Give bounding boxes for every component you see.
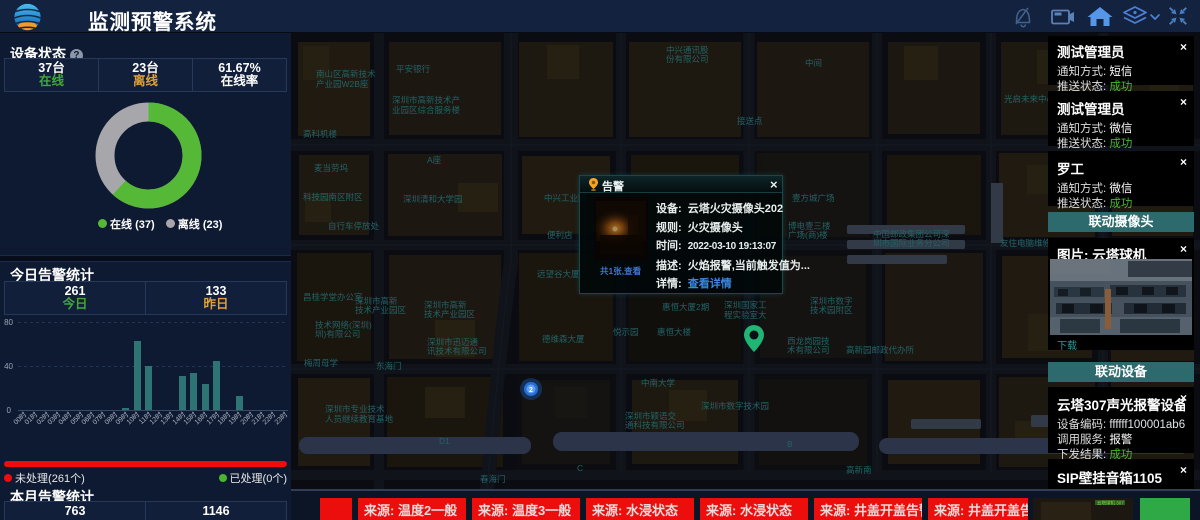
svg-text:0: 0 bbox=[7, 406, 12, 415]
svg-text:2: 2 bbox=[529, 387, 533, 394]
svg-text:云塔球机 307: 云塔球机 307 bbox=[1097, 500, 1124, 507]
svg-text:技术产业园区: 技术产业园区 bbox=[355, 305, 407, 315]
svg-text:深圳清和大学园: 深圳清和大学园 bbox=[403, 194, 463, 204]
svg-text:D1: D1 bbox=[439, 436, 450, 446]
svg-text:产业园W2B座: 产业园W2B座 bbox=[316, 79, 369, 89]
svg-text:科技园南区附区: 科技园南区附区 bbox=[303, 192, 363, 202]
svg-text:梅周母学: 梅周母学 bbox=[304, 358, 339, 368]
svg-text:通科技有限公司: 通科技有限公司 bbox=[625, 420, 685, 430]
svg-text:南山区高新技术: 南山区高新技术 bbox=[316, 69, 376, 79]
svg-text:中间: 中间 bbox=[805, 58, 822, 68]
svg-text:C: C bbox=[577, 463, 583, 473]
svg-text:圳市国际业务分公司: 圳市国际业务分公司 bbox=[873, 238, 950, 248]
svg-text:春海门: 春海门 bbox=[480, 474, 506, 484]
svg-text:麦当劳坞: 麦当劳坞 bbox=[314, 163, 348, 173]
svg-text:深圳市专业技术: 深圳市专业技术 bbox=[325, 404, 385, 414]
svg-text:人员继续教育基地: 人员继续教育基地 bbox=[325, 414, 394, 424]
svg-text:壹方城广场: 壹方城广场 bbox=[792, 193, 835, 203]
svg-text:份有限公司: 份有限公司 bbox=[666, 54, 709, 64]
svg-text:远望谷大厦: 远望谷大厦 bbox=[537, 269, 580, 279]
svg-text:便利店: 便利店 bbox=[547, 230, 573, 240]
svg-text:深圳市高新技术产: 深圳市高新技术产 bbox=[392, 95, 460, 105]
svg-text:东海门: 东海门 bbox=[376, 361, 402, 371]
svg-text:技术园附区: 技术园附区 bbox=[810, 305, 853, 315]
svg-text:德维森大厦: 德维森大厦 bbox=[542, 334, 585, 344]
svg-text:接送点: 接送点 bbox=[737, 116, 763, 126]
svg-text:B: B bbox=[787, 439, 793, 449]
svg-text:讯技术有限公司: 讯技术有限公司 bbox=[427, 346, 487, 356]
svg-text:40: 40 bbox=[4, 362, 13, 371]
svg-text:术有限公司: 术有限公司 bbox=[787, 345, 830, 355]
svg-text:友住电脑维修: 友住电脑维修 bbox=[1000, 238, 1052, 248]
svg-text:A座: A座 bbox=[427, 155, 442, 165]
svg-text:技术产业园区: 技术产业园区 bbox=[424, 309, 476, 319]
svg-text:自行车停放处: 自行车停放处 bbox=[328, 221, 380, 231]
svg-text:昌桂学堂办公室: 昌桂学堂办公室 bbox=[303, 292, 363, 302]
svg-text:悦示园: 悦示园 bbox=[613, 327, 639, 337]
svg-text:广场(商)楼: 广场(商)楼 bbox=[788, 230, 828, 240]
svg-text:业园区综合服务楼: 业园区综合服务楼 bbox=[392, 105, 461, 115]
svg-text:高新园邮政代办所: 高新园邮政代办所 bbox=[846, 345, 915, 355]
svg-text:惠恒大楼: 惠恒大楼 bbox=[657, 327, 692, 337]
svg-text:高新南: 高新南 bbox=[846, 465, 872, 475]
svg-text:圳)有限公司: 圳)有限公司 bbox=[315, 329, 360, 339]
svg-text:深圳国家工: 深圳国家工 bbox=[724, 300, 767, 310]
svg-text:平安银行: 平安银行 bbox=[396, 64, 431, 74]
svg-text:高科机楼: 高科机楼 bbox=[303, 129, 338, 139]
svg-text:深圳市数字技术园: 深圳市数字技术园 bbox=[701, 401, 769, 411]
svg-text:程实验室大: 程实验室大 bbox=[724, 310, 767, 320]
svg-text:中南大学: 中南大学 bbox=[641, 378, 676, 388]
svg-text:80: 80 bbox=[4, 318, 13, 327]
svg-text:惠恒大厦2期: 惠恒大厦2期 bbox=[662, 302, 709, 312]
